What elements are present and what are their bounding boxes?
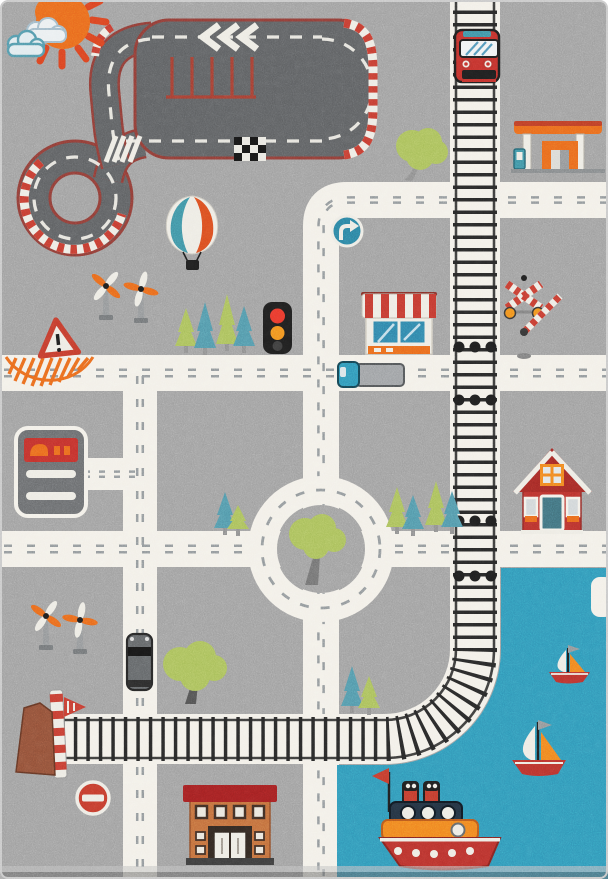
rug-photo: Children's play rug photo: city road map… (0, 0, 608, 879)
carpet-texture-coarse (0, 0, 608, 879)
play-rug-scene (0, 0, 608, 879)
